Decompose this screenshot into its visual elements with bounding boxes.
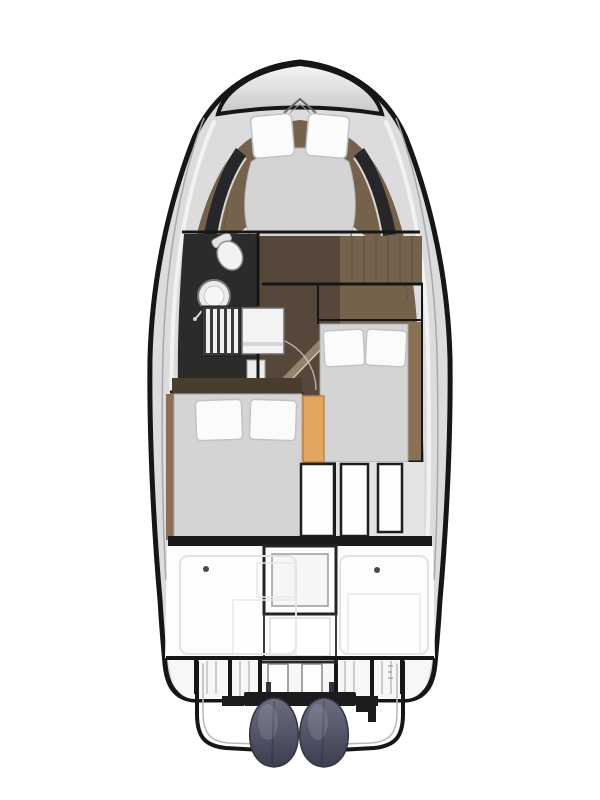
engine-starboard-highlight <box>308 704 328 740</box>
bracket-arm-starboard <box>356 696 378 706</box>
foredeck-surface <box>218 64 382 114</box>
companionway-door <box>301 464 334 536</box>
hatch-lower-panel <box>270 618 330 656</box>
deck-plan-drawing <box>0 0 600 800</box>
cockpit <box>165 546 435 658</box>
outboard-engines <box>250 698 349 767</box>
v-berth-pillow-left <box>250 113 295 158</box>
bracket-arm-port <box>222 696 244 706</box>
bracket-step-starboard <box>356 706 376 722</box>
starboard-pillow-left <box>323 329 365 367</box>
vanity-counter <box>242 308 284 354</box>
v-berth-pillow-right <box>305 113 350 158</box>
locker-door-1 <box>341 464 368 536</box>
locker-door-2 <box>378 464 402 532</box>
orange-seat <box>303 396 324 462</box>
starboard-pillow-right <box>365 329 407 367</box>
companionway-steps <box>202 306 240 356</box>
foredeck <box>218 64 382 114</box>
deck-latch-starboard <box>374 567 380 573</box>
port-berth-headboard <box>172 378 302 394</box>
aft-companionway <box>301 462 424 540</box>
wardrobe-side <box>408 322 422 462</box>
engine-port-highlight <box>258 704 278 740</box>
starboard-cabin <box>320 324 408 462</box>
deck-plan-canvas <box>0 0 600 800</box>
deck-latch-port <box>203 566 209 572</box>
port-pillow-right <box>249 399 296 441</box>
port-pillow-left <box>195 399 242 441</box>
engine-hatch-inner <box>272 554 328 606</box>
